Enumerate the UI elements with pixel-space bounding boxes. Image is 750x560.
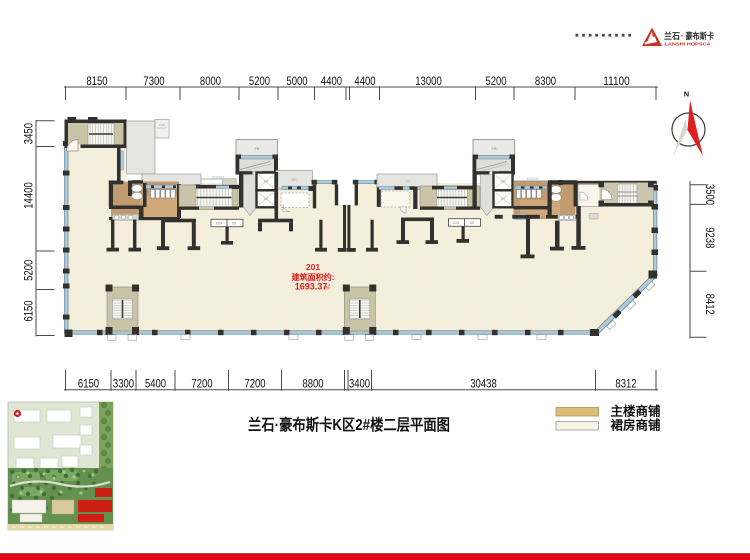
svg-text:5000: 5000 [286, 76, 307, 88]
svg-text:9238: 9238 [703, 227, 715, 248]
svg-text:8412: 8412 [703, 294, 715, 315]
svg-text:豪布斯卡: 豪布斯卡 [686, 30, 715, 41]
svg-text:XX: XX [470, 221, 475, 225]
svg-text:XX: XX [405, 178, 411, 183]
svg-text:裙房商铺: 裙房商铺 [610, 418, 662, 433]
svg-text:14400: 14400 [24, 182, 36, 209]
svg-text:5200: 5200 [485, 76, 506, 88]
svg-text:5200: 5200 [249, 76, 270, 88]
svg-text:7200: 7200 [191, 379, 212, 391]
svg-text:XXXXXX: XXXXXX [212, 176, 226, 180]
svg-text:5200: 5200 [24, 260, 36, 281]
svg-text:3450: 3450 [24, 123, 36, 144]
svg-text:6150: 6150 [78, 379, 99, 391]
svg-text:4400: 4400 [321, 76, 342, 88]
svg-text:N: N [684, 90, 689, 99]
svg-text:建筑面积约:: 建筑面积约: [291, 272, 335, 282]
svg-text:7200: 7200 [244, 379, 265, 391]
svg-text:1693.37: 1693.37 [295, 282, 328, 292]
svg-text:㎡: ㎡ [324, 284, 330, 292]
svg-text:兰石: 兰石 [664, 30, 680, 41]
svg-text:5400: 5400 [145, 379, 166, 391]
svg-text:8800: 8800 [302, 379, 323, 391]
svg-text:6150: 6150 [24, 300, 36, 321]
svg-text:·: · [681, 31, 684, 41]
svg-text:3300: 3300 [113, 379, 134, 391]
svg-text:11100: 11100 [603, 76, 630, 88]
svg-text:主楼商铺: 主楼商铺 [611, 404, 662, 419]
svg-text:XXX: XXX [216, 222, 224, 226]
svg-text:FB: FB [491, 146, 496, 151]
svg-text:4400: 4400 [354, 76, 375, 88]
svg-text:8000: 8000 [200, 76, 221, 88]
svg-text:201: 201 [306, 262, 320, 272]
svg-text:30438: 30438 [470, 379, 497, 391]
svg-text:8312: 8312 [615, 379, 636, 391]
svg-text:XXX: XXX [453, 221, 461, 225]
svg-text:3500: 3500 [703, 184, 715, 205]
svg-text:13000: 13000 [415, 76, 442, 88]
svg-text:XXX: XXX [159, 123, 165, 127]
svg-text:XX: XX [291, 177, 297, 182]
svg-text:兰石·豪布斯卡K区2#楼二层平面图: 兰石·豪布斯卡K区2#楼二层平面图 [248, 415, 450, 434]
svg-text:XXXXXX: XXXXXX [527, 177, 541, 181]
svg-text:8300: 8300 [535, 76, 556, 88]
svg-text:LANSHI HOPSCA: LANSHI HOPSCA [665, 42, 711, 47]
svg-text:8150: 8150 [86, 76, 107, 88]
svg-text:FB: FB [254, 146, 259, 151]
svg-text:7300: 7300 [143, 76, 164, 88]
svg-text:XX: XX [232, 222, 237, 226]
svg-text:3400: 3400 [349, 379, 370, 391]
